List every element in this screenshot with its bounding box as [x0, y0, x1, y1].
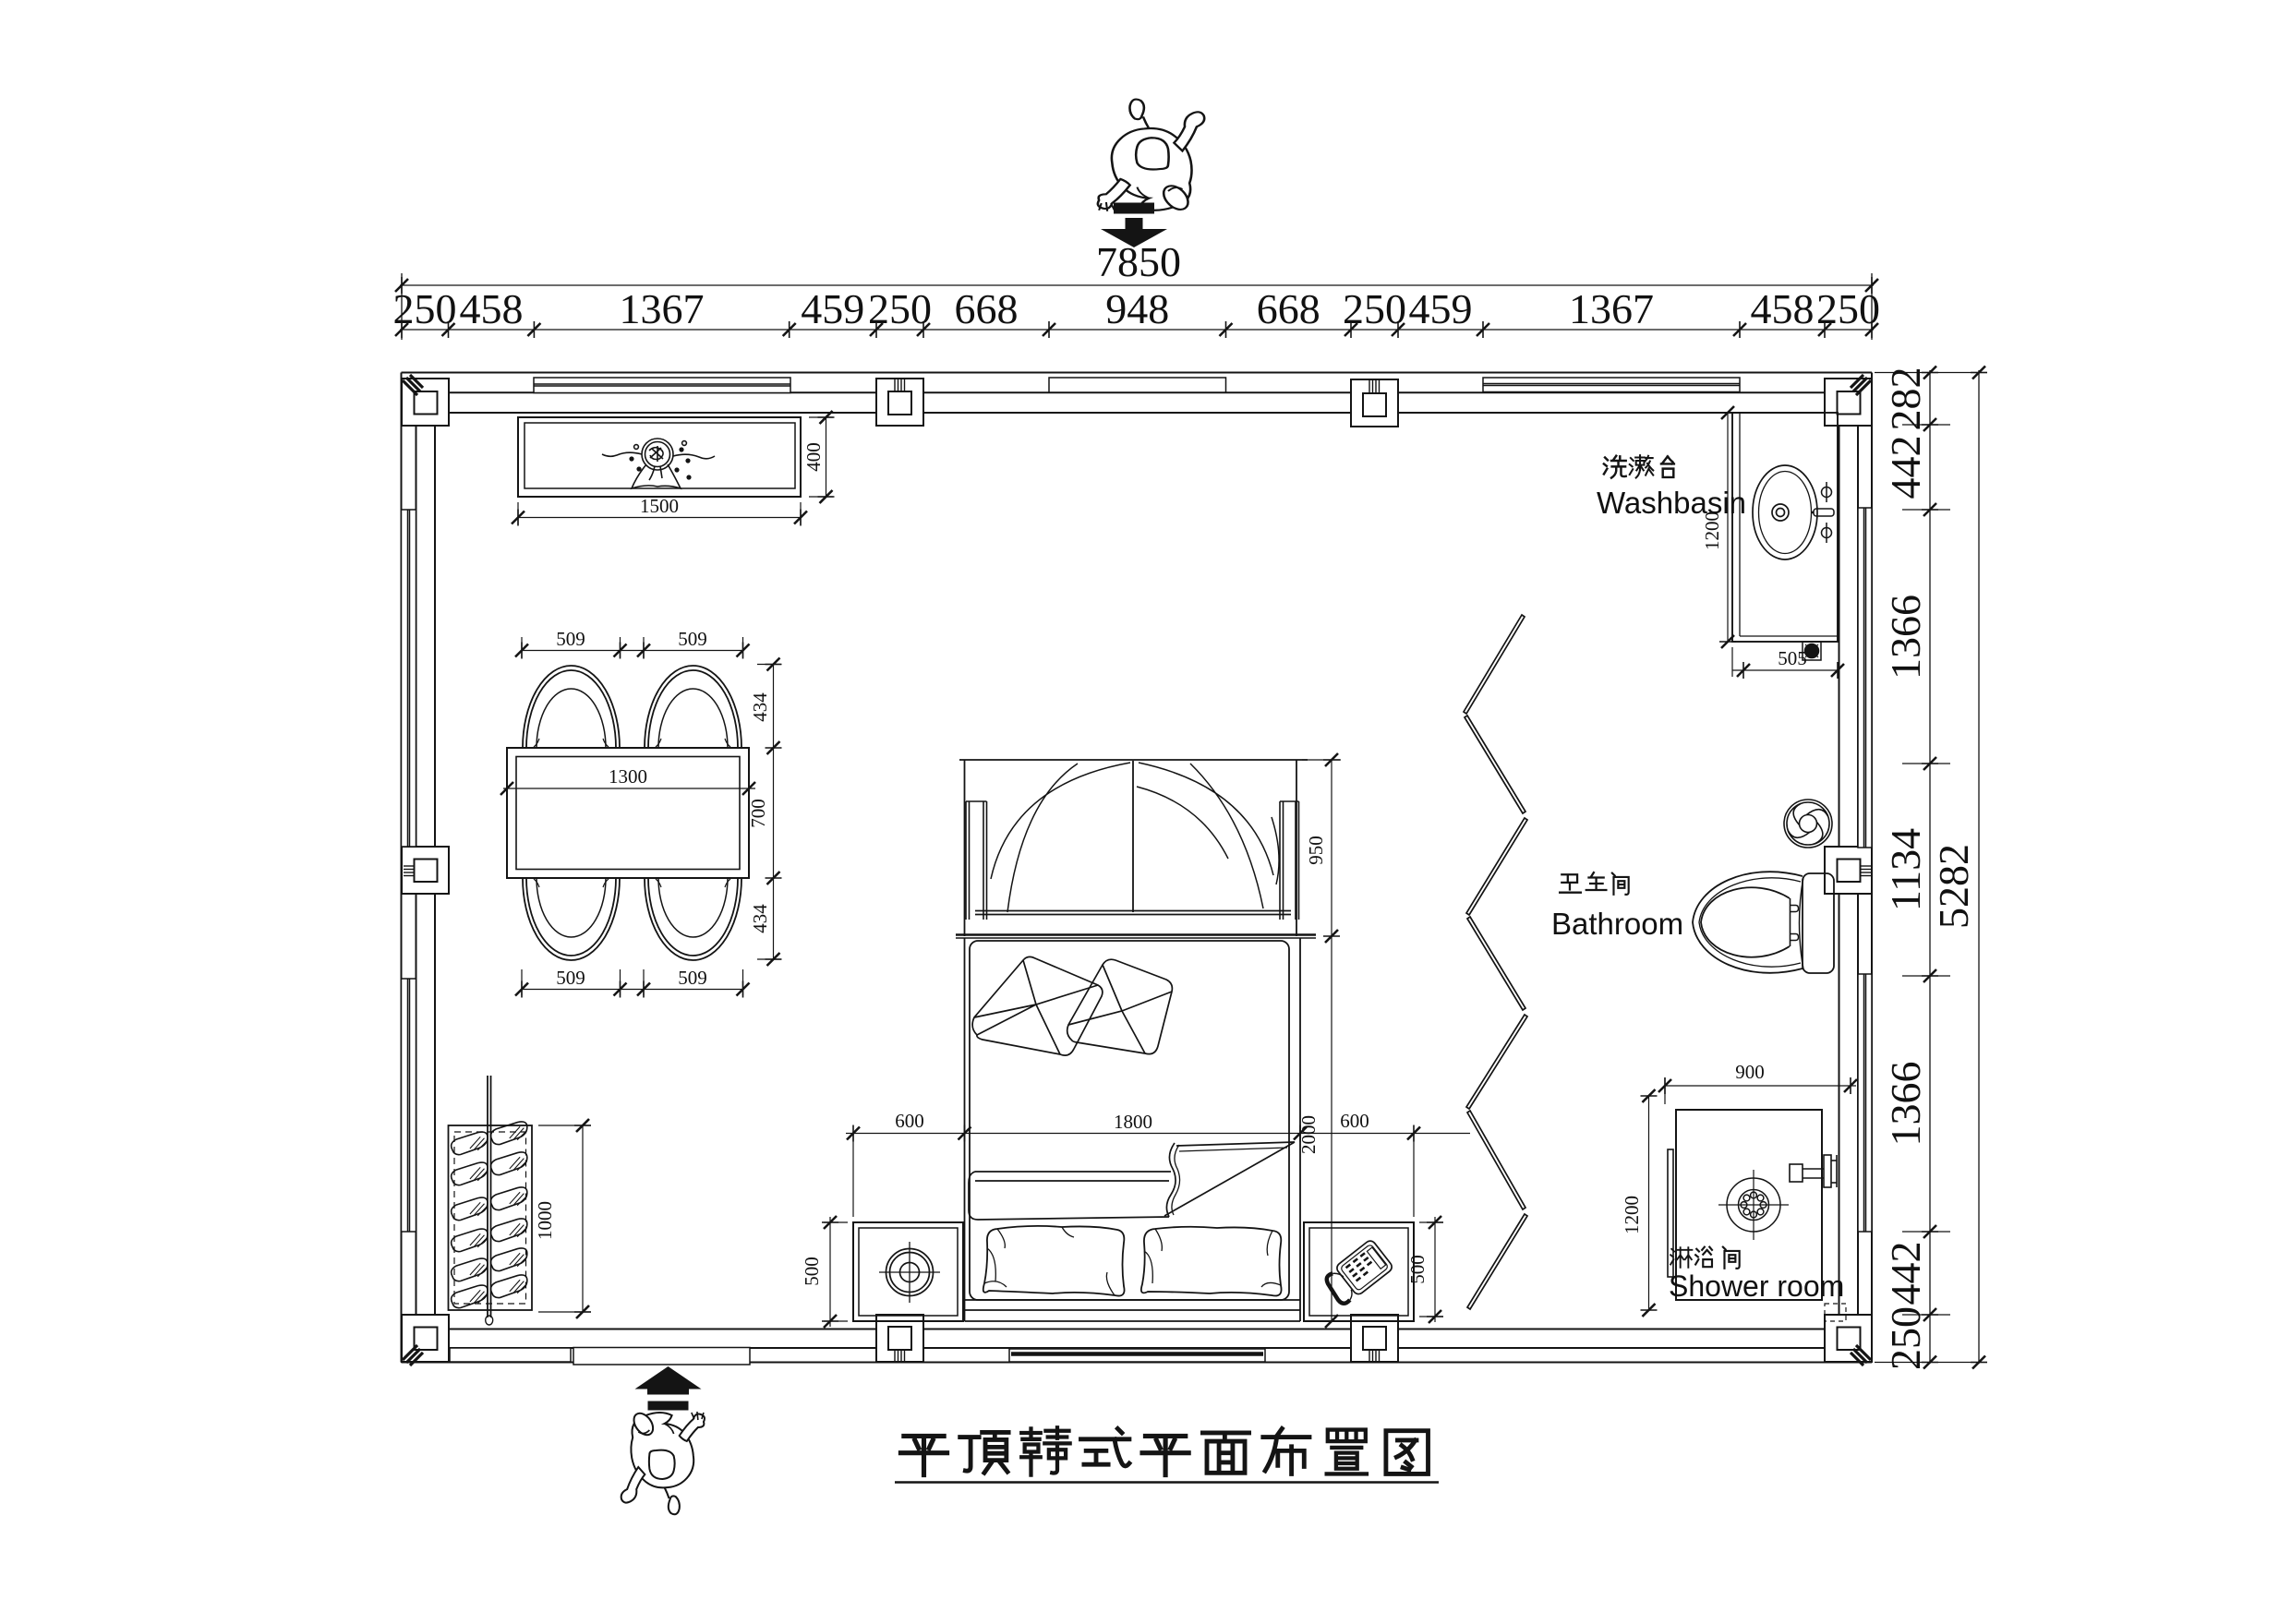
- svg-text:500: 500: [801, 1257, 823, 1286]
- svg-text:950: 950: [1305, 836, 1327, 865]
- svg-text:459: 459: [1409, 285, 1473, 332]
- svg-text:442: 442: [1882, 436, 1929, 499]
- svg-text:600: 600: [895, 1110, 924, 1132]
- svg-text:250: 250: [868, 285, 932, 332]
- svg-text:400: 400: [802, 442, 825, 472]
- svg-text:Shower room: Shower room: [1669, 1269, 1844, 1303]
- svg-text:500: 500: [1406, 1255, 1429, 1284]
- svg-text:900: 900: [1735, 1061, 1765, 1083]
- svg-text:Bathroom: Bathroom: [1551, 907, 1683, 941]
- svg-text:1366: 1366: [1882, 595, 1929, 680]
- svg-text:948: 948: [1105, 285, 1169, 332]
- svg-text:250: 250: [1882, 1306, 1929, 1370]
- svg-text:1500: 1500: [640, 495, 679, 517]
- svg-text:250: 250: [393, 285, 457, 332]
- svg-text:7850: 7850: [1096, 238, 1181, 285]
- svg-text:668: 668: [1257, 285, 1320, 332]
- svg-text:1367: 1367: [620, 285, 705, 332]
- svg-text:509: 509: [678, 967, 707, 989]
- svg-text:2000: 2000: [1297, 1115, 1320, 1154]
- svg-text:458: 458: [1751, 285, 1815, 332]
- svg-text:442: 442: [1882, 1242, 1929, 1305]
- svg-text:458: 458: [460, 285, 524, 332]
- svg-text:600: 600: [1340, 1110, 1369, 1132]
- svg-text:282: 282: [1882, 367, 1929, 431]
- svg-text:250: 250: [1816, 285, 1880, 332]
- svg-text:250: 250: [1343, 285, 1406, 332]
- svg-text:700: 700: [747, 799, 769, 828]
- svg-text:434: 434: [749, 692, 771, 722]
- svg-text:1366: 1366: [1882, 1062, 1929, 1147]
- svg-text:1200: 1200: [1621, 1196, 1643, 1234]
- svg-text:1300: 1300: [609, 765, 647, 788]
- svg-text:434: 434: [749, 904, 771, 933]
- svg-text:5282: 5282: [1930, 844, 1977, 929]
- svg-text:1367: 1367: [1569, 285, 1654, 332]
- svg-text:668: 668: [955, 285, 1019, 332]
- svg-text:459: 459: [801, 285, 864, 332]
- svg-text:505: 505: [1778, 647, 1807, 669]
- svg-text:1800: 1800: [1114, 1111, 1152, 1133]
- svg-text:1134: 1134: [1882, 828, 1929, 911]
- svg-text:509: 509: [556, 628, 585, 650]
- svg-text:Washbasin: Washbasin: [1597, 486, 1746, 520]
- svg-text:509: 509: [556, 967, 585, 989]
- svg-text:509: 509: [678, 628, 707, 650]
- svg-text:1000: 1000: [534, 1201, 556, 1240]
